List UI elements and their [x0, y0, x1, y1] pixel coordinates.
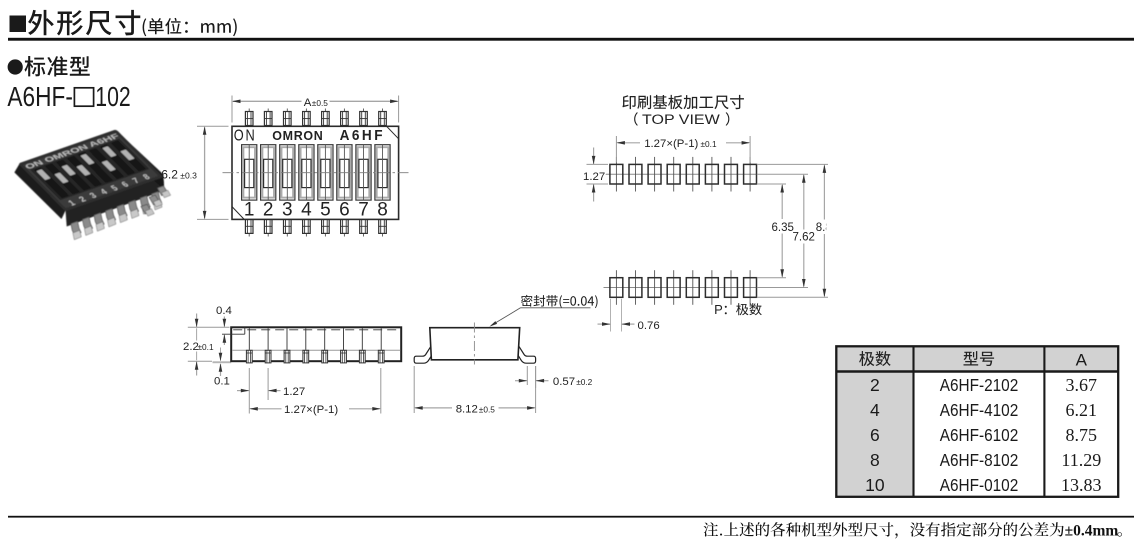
svg-text:A6HF-2102: A6HF-2102 — [940, 375, 1019, 395]
svg-text:A6HF-0102: A6HF-0102 — [940, 475, 1019, 495]
svg-text:A: A — [304, 97, 312, 109]
svg-text:4: 4 — [870, 400, 880, 420]
svg-text:A: A — [1076, 350, 1088, 369]
svg-text:±0.1: ±0.1 — [701, 139, 717, 149]
svg-text:4: 4 — [301, 200, 312, 221]
svg-text:2: 2 — [870, 375, 880, 395]
svg-text:1: 1 — [244, 200, 255, 221]
svg-text:11.29: 11.29 — [1061, 450, 1101, 470]
svg-text:1.27: 1.27 — [583, 171, 605, 183]
svg-text:1.27: 1.27 — [283, 386, 305, 398]
svg-text:6: 6 — [339, 200, 350, 221]
svg-text:5: 5 — [320, 200, 331, 221]
svg-text:±0.1: ±0.1 — [198, 342, 214, 352]
svg-text:OMRON: OMRON — [272, 129, 323, 143]
svg-text:8: 8 — [870, 450, 880, 470]
svg-text:6: 6 — [870, 425, 880, 445]
svg-text:6.2: 6.2 — [161, 167, 178, 181]
svg-text:±0.4mm: ±0.4mm — [1065, 522, 1119, 539]
svg-text:6.35: 6.35 — [772, 222, 794, 234]
svg-text:13.83: 13.83 — [1061, 475, 1102, 495]
svg-text:10: 10 — [865, 475, 885, 495]
svg-text:0.57: 0.57 — [553, 376, 575, 388]
svg-text:0.76: 0.76 — [638, 320, 660, 332]
svg-text:±0.5: ±0.5 — [312, 98, 328, 108]
svg-text:ON: ON — [234, 127, 257, 144]
svg-text:7: 7 — [358, 200, 369, 221]
svg-text:A6HF: A6HF — [340, 128, 385, 144]
svg-text:2: 2 — [263, 200, 274, 221]
svg-text:3.67: 3.67 — [1066, 375, 1098, 395]
svg-text:7.62: 7.62 — [793, 231, 815, 243]
svg-text:2.2: 2.2 — [183, 341, 199, 353]
svg-text:3: 3 — [282, 200, 293, 221]
svg-text:±0.3: ±0.3 — [180, 170, 197, 180]
svg-text:P: P — [714, 302, 723, 317]
svg-text:A6HF-8102: A6HF-8102 — [940, 450, 1019, 470]
svg-text:A6HF-6102: A6HF-6102 — [940, 425, 1019, 445]
svg-text:1.27×(P-1): 1.27×(P-1) — [644, 138, 698, 150]
svg-text:A6HF-: A6HF- — [7, 81, 73, 112]
svg-text:8.75: 8.75 — [1066, 425, 1098, 445]
svg-text:TOP VIEW: TOP VIEW — [642, 112, 720, 127]
svg-text:0.1: 0.1 — [214, 376, 230, 388]
svg-text:0.4: 0.4 — [216, 305, 232, 317]
svg-text:±0.2: ±0.2 — [576, 377, 592, 387]
svg-text:1.27×(P-1): 1.27×(P-1) — [284, 404, 338, 416]
svg-text:±0.5: ±0.5 — [479, 404, 495, 414]
svg-text:102: 102 — [95, 81, 130, 112]
svg-text:A6HF-4102: A6HF-4102 — [940, 400, 1019, 420]
svg-text:6.21: 6.21 — [1066, 400, 1098, 420]
svg-text:8.12: 8.12 — [456, 403, 478, 415]
svg-text:8: 8 — [377, 200, 388, 221]
